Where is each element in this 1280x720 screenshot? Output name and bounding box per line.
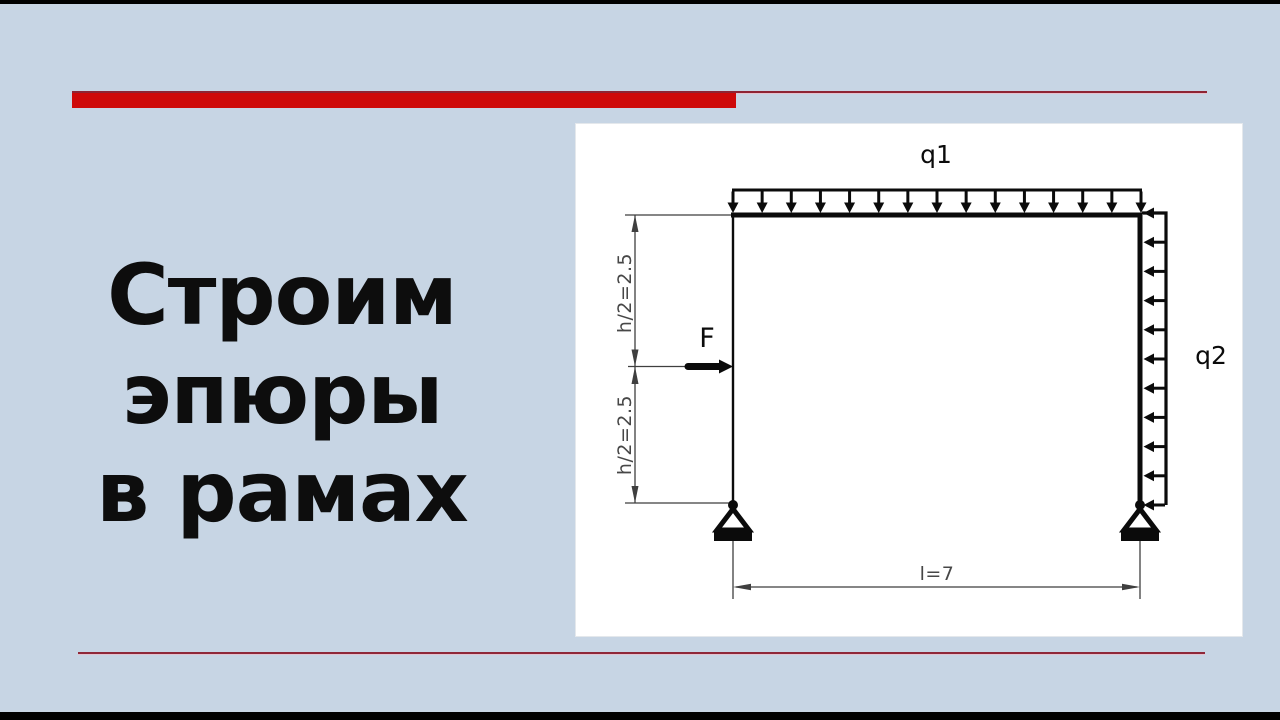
force-f-arrowhead-icon xyxy=(719,360,733,374)
load-arrow-head-icon xyxy=(902,203,913,214)
dim-arrow-down-icon xyxy=(632,486,639,503)
load-arrow-head-icon xyxy=(844,203,855,214)
height-upper-dim-label: h/2=2.5 xyxy=(614,253,636,333)
dim-arrow-up-icon xyxy=(632,367,639,385)
load-arrow-head-icon xyxy=(1144,324,1155,335)
presentation-slide: Строим эпюры в рамах h/2=2.5 h/2=2.5 l=7 xyxy=(0,0,1280,720)
dim-arrow-right-icon xyxy=(1122,584,1140,590)
support-triangle-icon xyxy=(717,509,749,530)
load-q2-arrows xyxy=(1144,208,1166,511)
load-arrow-head-icon xyxy=(1144,441,1155,452)
letterbox-bottom-strip xyxy=(0,712,1280,720)
load-arrow-head-icon xyxy=(1106,203,1117,214)
load-arrow-head-icon xyxy=(1144,412,1155,423)
title-line-3: в рамах xyxy=(72,443,492,541)
support-triangle-icon xyxy=(1124,509,1156,530)
load-arrow-head-icon xyxy=(786,203,797,214)
title-line-1: Строим xyxy=(72,246,492,344)
load-arrow-head-icon xyxy=(1144,354,1155,365)
load-arrow-head-icon xyxy=(1144,295,1155,306)
load-arrow-head-icon xyxy=(932,203,943,214)
load-arrow-head-icon xyxy=(815,203,826,214)
load-arrow-head-icon xyxy=(1144,266,1155,277)
load-arrow-head-icon xyxy=(1048,203,1059,214)
load-arrow-head-icon xyxy=(1144,500,1155,511)
pinned-support-left xyxy=(714,500,752,541)
load-q2-label: q2 xyxy=(1195,341,1227,370)
load-arrow-head-icon xyxy=(1144,383,1155,394)
load-arrow-head-icon xyxy=(1144,208,1155,219)
load-arrow-head-icon xyxy=(961,203,972,214)
span-dim-label: l=7 xyxy=(920,563,955,585)
support-base-icon xyxy=(714,532,752,541)
frame-scheme-svg: h/2=2.5 h/2=2.5 l=7 q1 q2 F xyxy=(575,123,1243,637)
accent-bar xyxy=(72,93,736,108)
footer-divider-line xyxy=(78,652,1205,654)
load-arrow-head-icon xyxy=(873,203,884,214)
frame-diagram-panel: h/2=2.5 h/2=2.5 l=7 q1 q2 F xyxy=(575,123,1243,637)
dim-arrow-up-icon xyxy=(632,215,639,232)
force-f-label: F xyxy=(699,323,715,354)
dim-arrow-left-icon xyxy=(733,584,751,590)
support-base-icon xyxy=(1121,532,1159,541)
load-arrow-head-icon xyxy=(1019,203,1030,214)
load-arrow-head-icon xyxy=(990,203,1001,214)
title-line-2: эпюры xyxy=(72,345,492,443)
slide-title: Строим эпюры в рамах xyxy=(72,246,492,541)
load-arrow-head-icon xyxy=(1077,203,1088,214)
load-arrow-head-icon xyxy=(728,203,739,214)
load-arrow-head-icon xyxy=(1144,237,1155,248)
load-arrow-head-icon xyxy=(757,203,768,214)
dim-arrow-down-icon xyxy=(632,350,639,367)
letterbox-top-strip xyxy=(0,0,1280,4)
load-q1-label: q1 xyxy=(920,140,952,169)
height-lower-dim-label: h/2=2.5 xyxy=(614,395,636,475)
load-arrow-head-icon xyxy=(1144,470,1155,481)
load-q1-arrows xyxy=(728,192,1147,214)
